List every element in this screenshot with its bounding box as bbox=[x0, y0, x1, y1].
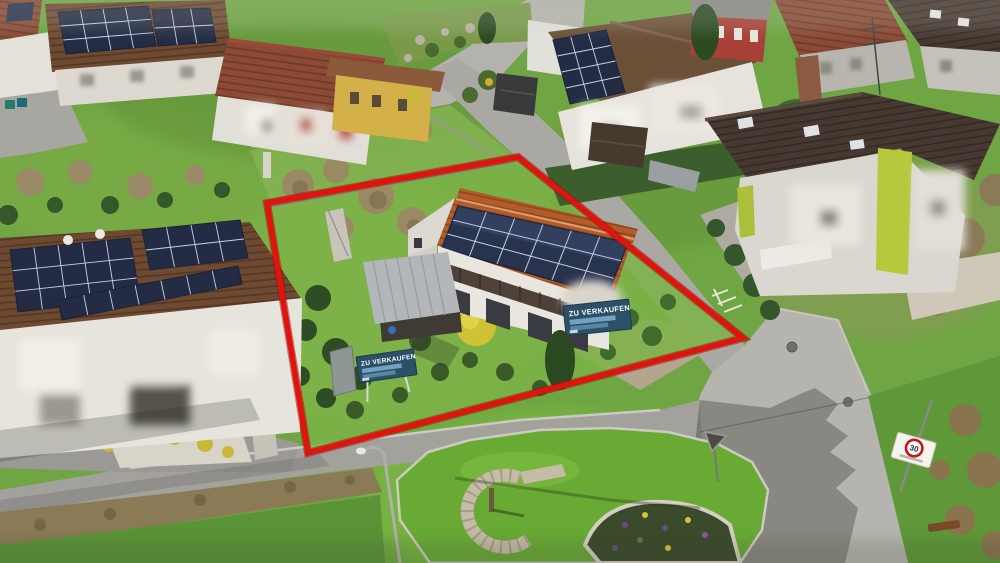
blue-barrel bbox=[388, 326, 396, 334]
satellite-dish-2 bbox=[95, 229, 105, 239]
scene-svg: 30 ZU VERKAUFEN ZU VERKAUFEN bbox=[0, 0, 1000, 563]
gate-pillar bbox=[263, 152, 271, 178]
well-post bbox=[489, 488, 494, 512]
sign-back bbox=[330, 346, 356, 396]
yellow-house bbox=[326, 58, 445, 142]
sale-banner-house: ZU VERKAUFEN bbox=[563, 299, 632, 336]
left-house bbox=[0, 220, 302, 462]
satellite-dish bbox=[63, 235, 73, 245]
aerial-photo: 30 ZU VERKAUFEN ZU VERKAUFEN bbox=[0, 0, 1000, 563]
green-glass-column bbox=[876, 148, 912, 275]
